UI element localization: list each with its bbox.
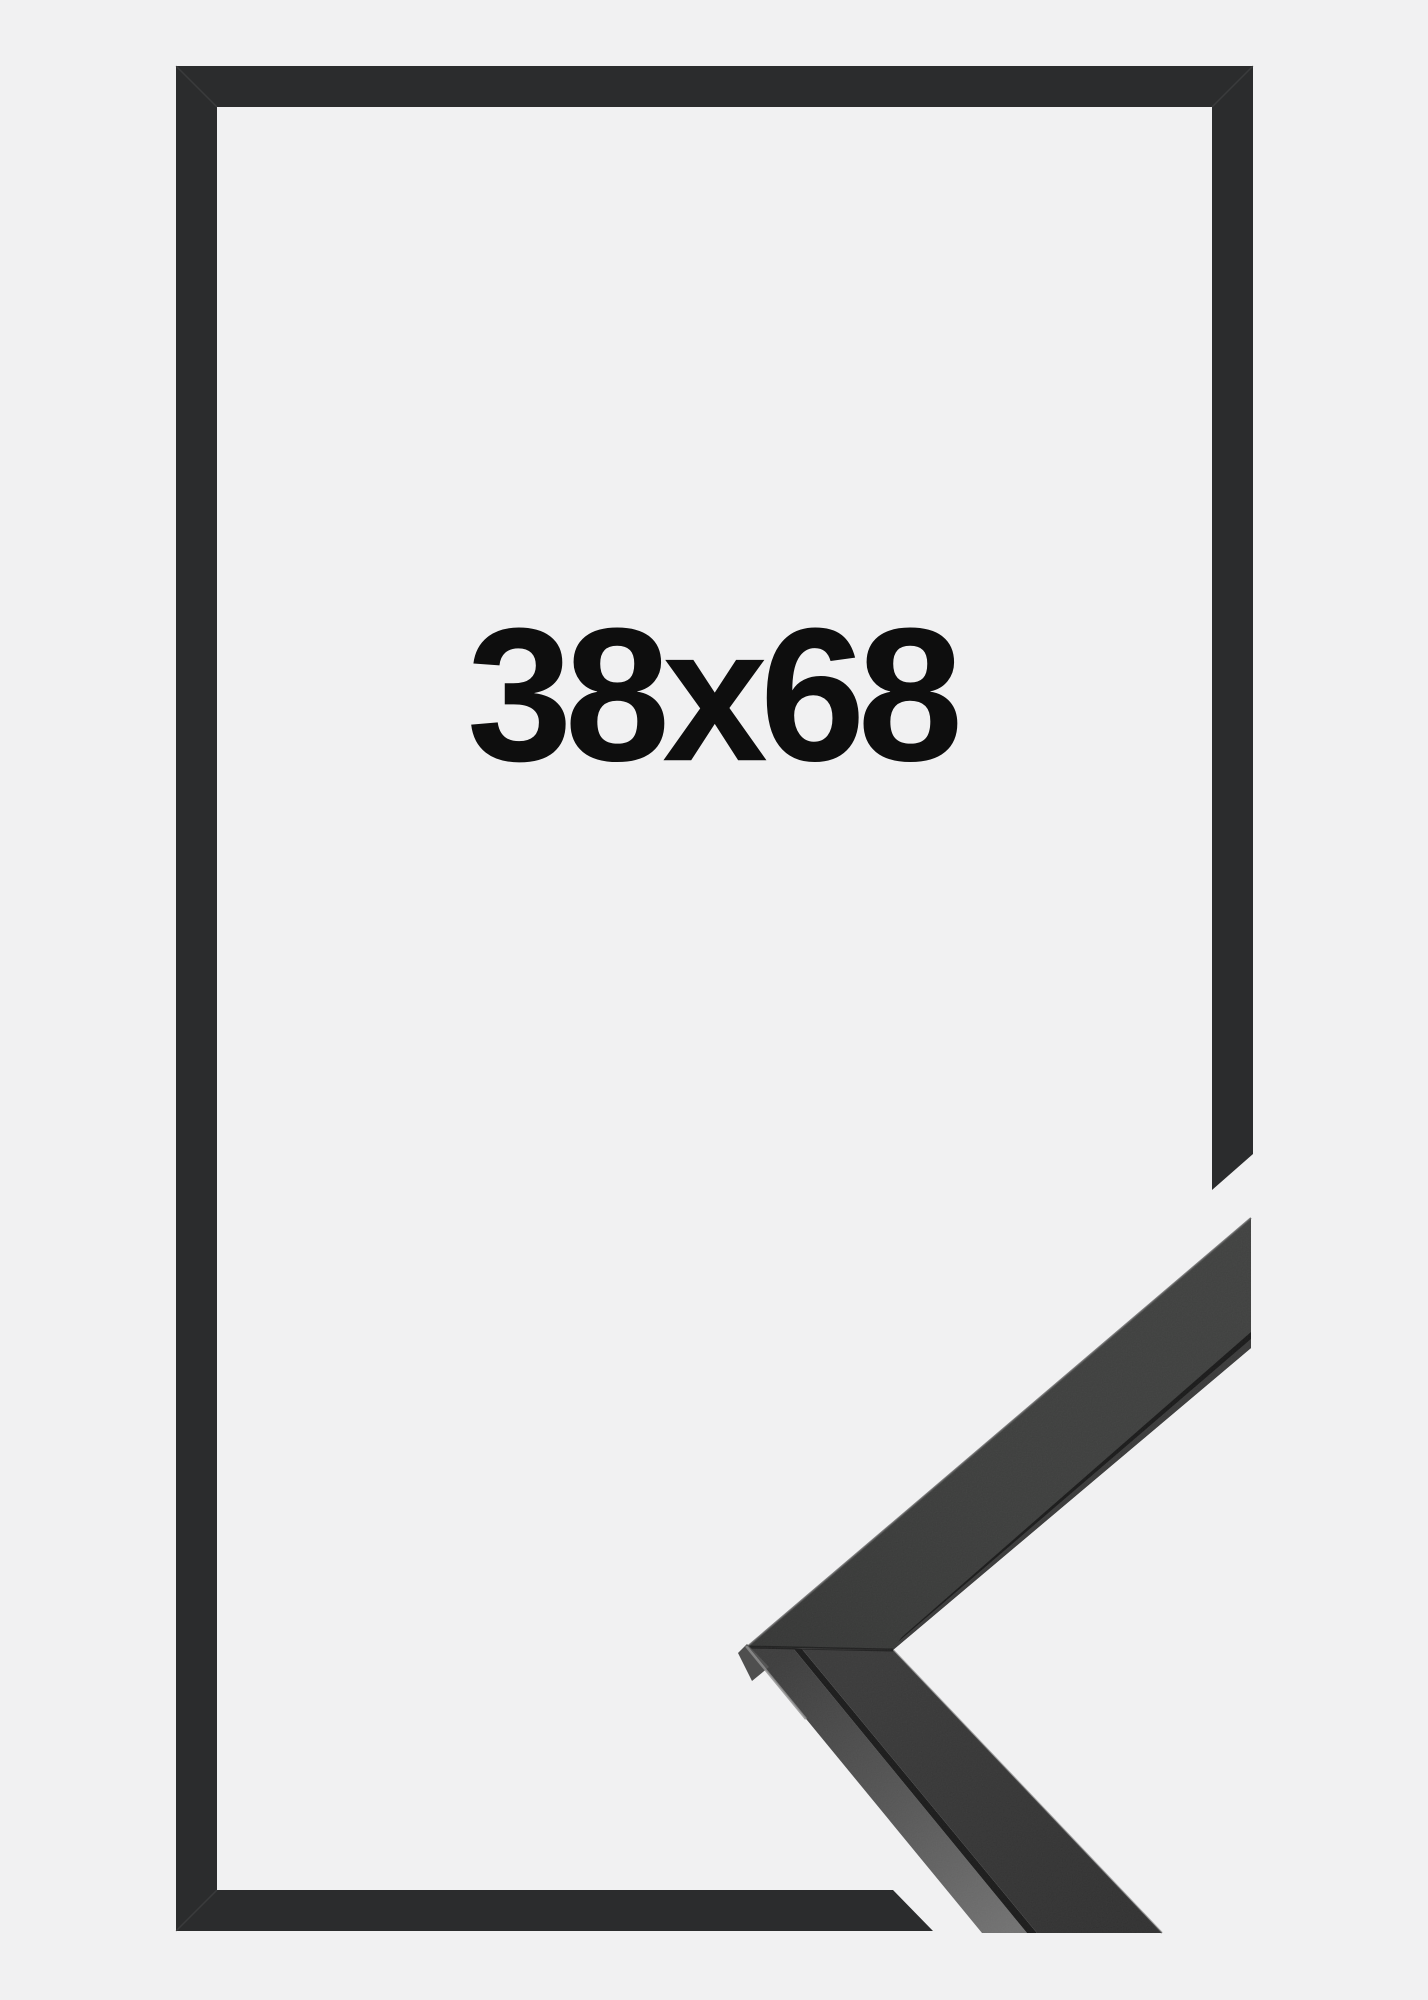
frame-outline-bottom-bar: [176, 1890, 933, 1931]
frame-outline-left-bar: [176, 66, 217, 1931]
frame-outline-right-bar: [1212, 66, 1253, 1190]
frame-outline-graphic: [176, 66, 1253, 1931]
frame-product-image: 38x68: [0, 0, 1428, 2000]
frame-corner-photo: [700, 1180, 1300, 1960]
size-label: 38x68: [467, 600, 955, 790]
frame-graphic-canvas: [0, 0, 1428, 2000]
corner-grain-texture: [700, 1180, 1300, 1960]
frame-outline-top-bar: [176, 66, 1253, 107]
frame-outline-mitre-seams: [176, 66, 1253, 1931]
